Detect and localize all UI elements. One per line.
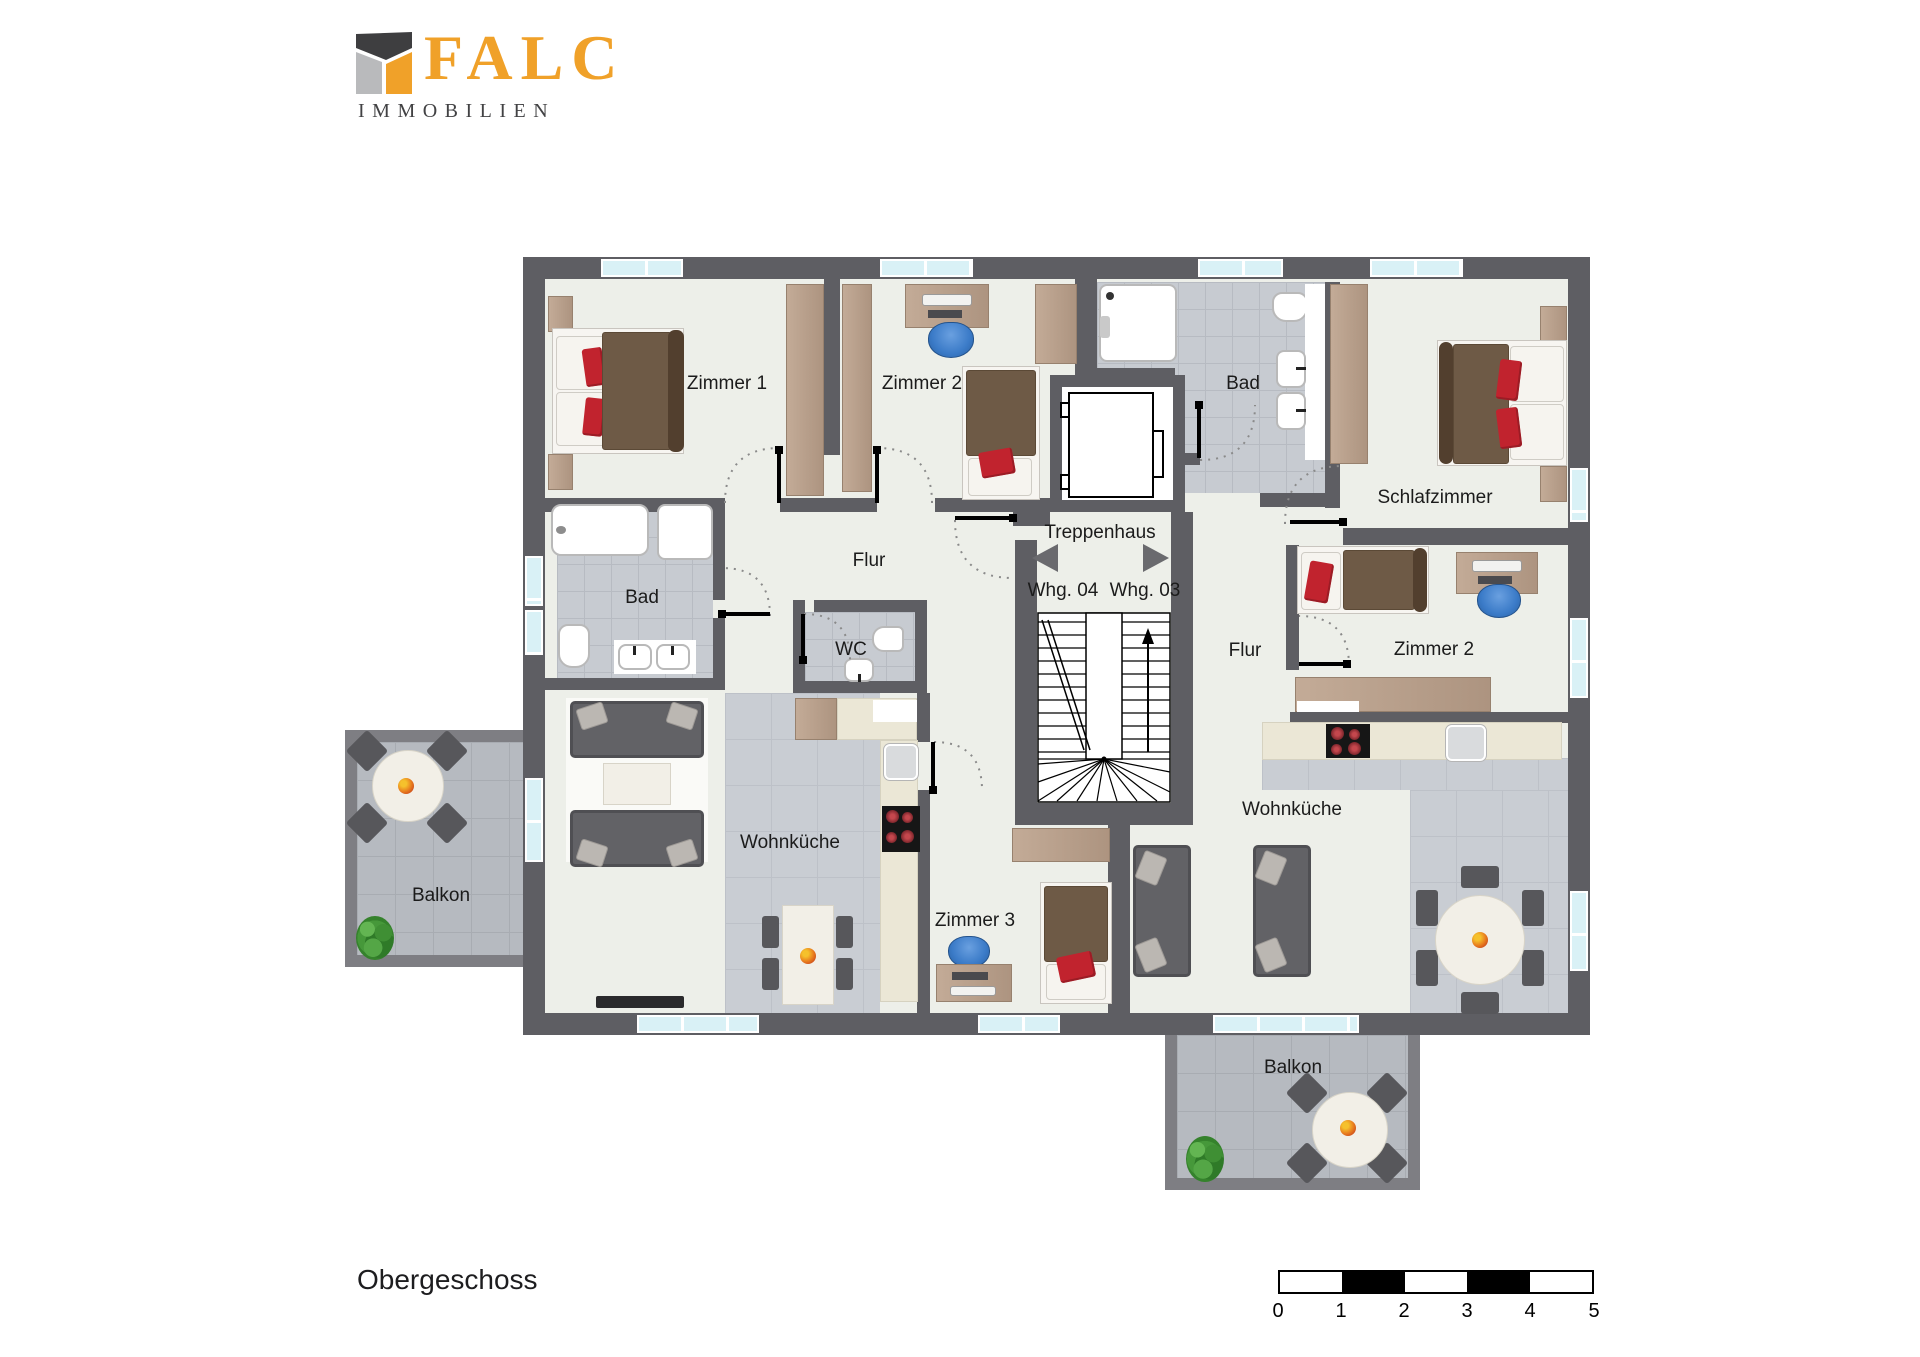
scale-segment xyxy=(1342,1272,1404,1292)
scale-segment xyxy=(1467,1272,1529,1292)
scale-tick: 1 xyxy=(1335,1300,1346,1323)
floor-plan-page: FALC IMMOBILIEN xyxy=(0,0,1920,1357)
scale-tick: 5 xyxy=(1588,1300,1599,1323)
room-label-flur-right: Flur xyxy=(1229,640,1262,662)
room-label-zimmer2-right: Zimmer 2 xyxy=(1394,639,1474,661)
arrow-right-icon xyxy=(1143,544,1169,572)
room-label-treppenhaus: Treppenhaus xyxy=(1044,522,1155,544)
room-label-wohnkueche-left: Wohnküche xyxy=(740,832,840,854)
unit-label-whg-04: Whg. 04 xyxy=(1028,580,1099,602)
room-label-zimmer2-left: Zimmer 2 xyxy=(882,373,962,395)
scale-segment xyxy=(1530,1272,1592,1292)
arrow-left-icon xyxy=(1032,544,1058,572)
room-label-bad-left: Bad xyxy=(625,587,659,609)
unit-label-whg-03: Whg. 03 xyxy=(1110,580,1181,602)
room-label-zimmer3: Zimmer 3 xyxy=(935,910,1015,932)
scale-segment xyxy=(1280,1272,1342,1292)
scale-tick: 0 xyxy=(1272,1300,1283,1323)
room-label-wohnkueche-right: Wohnküche xyxy=(1242,799,1342,821)
room-label-flur-left: Flur xyxy=(853,550,886,572)
scale-tick: 2 xyxy=(1398,1300,1409,1323)
room-label-bad-right: Bad xyxy=(1226,373,1260,395)
room-label-wc: WC xyxy=(835,639,867,661)
doors-overlay xyxy=(0,0,1920,1357)
room-label-schlafzimmer: Schlafzimmer xyxy=(1377,487,1492,509)
room-label-balkon-bottom: Balkon xyxy=(1264,1057,1322,1079)
room-label-zimmer1: Zimmer 1 xyxy=(687,373,767,395)
scale-segment xyxy=(1405,1272,1467,1292)
scale-bar xyxy=(1278,1270,1594,1294)
floor-title: Obergeschoss xyxy=(357,1264,538,1296)
scale-tick: 3 xyxy=(1461,1300,1472,1323)
scale-tick: 4 xyxy=(1524,1300,1535,1323)
room-label-balkon-left: Balkon xyxy=(412,885,470,907)
